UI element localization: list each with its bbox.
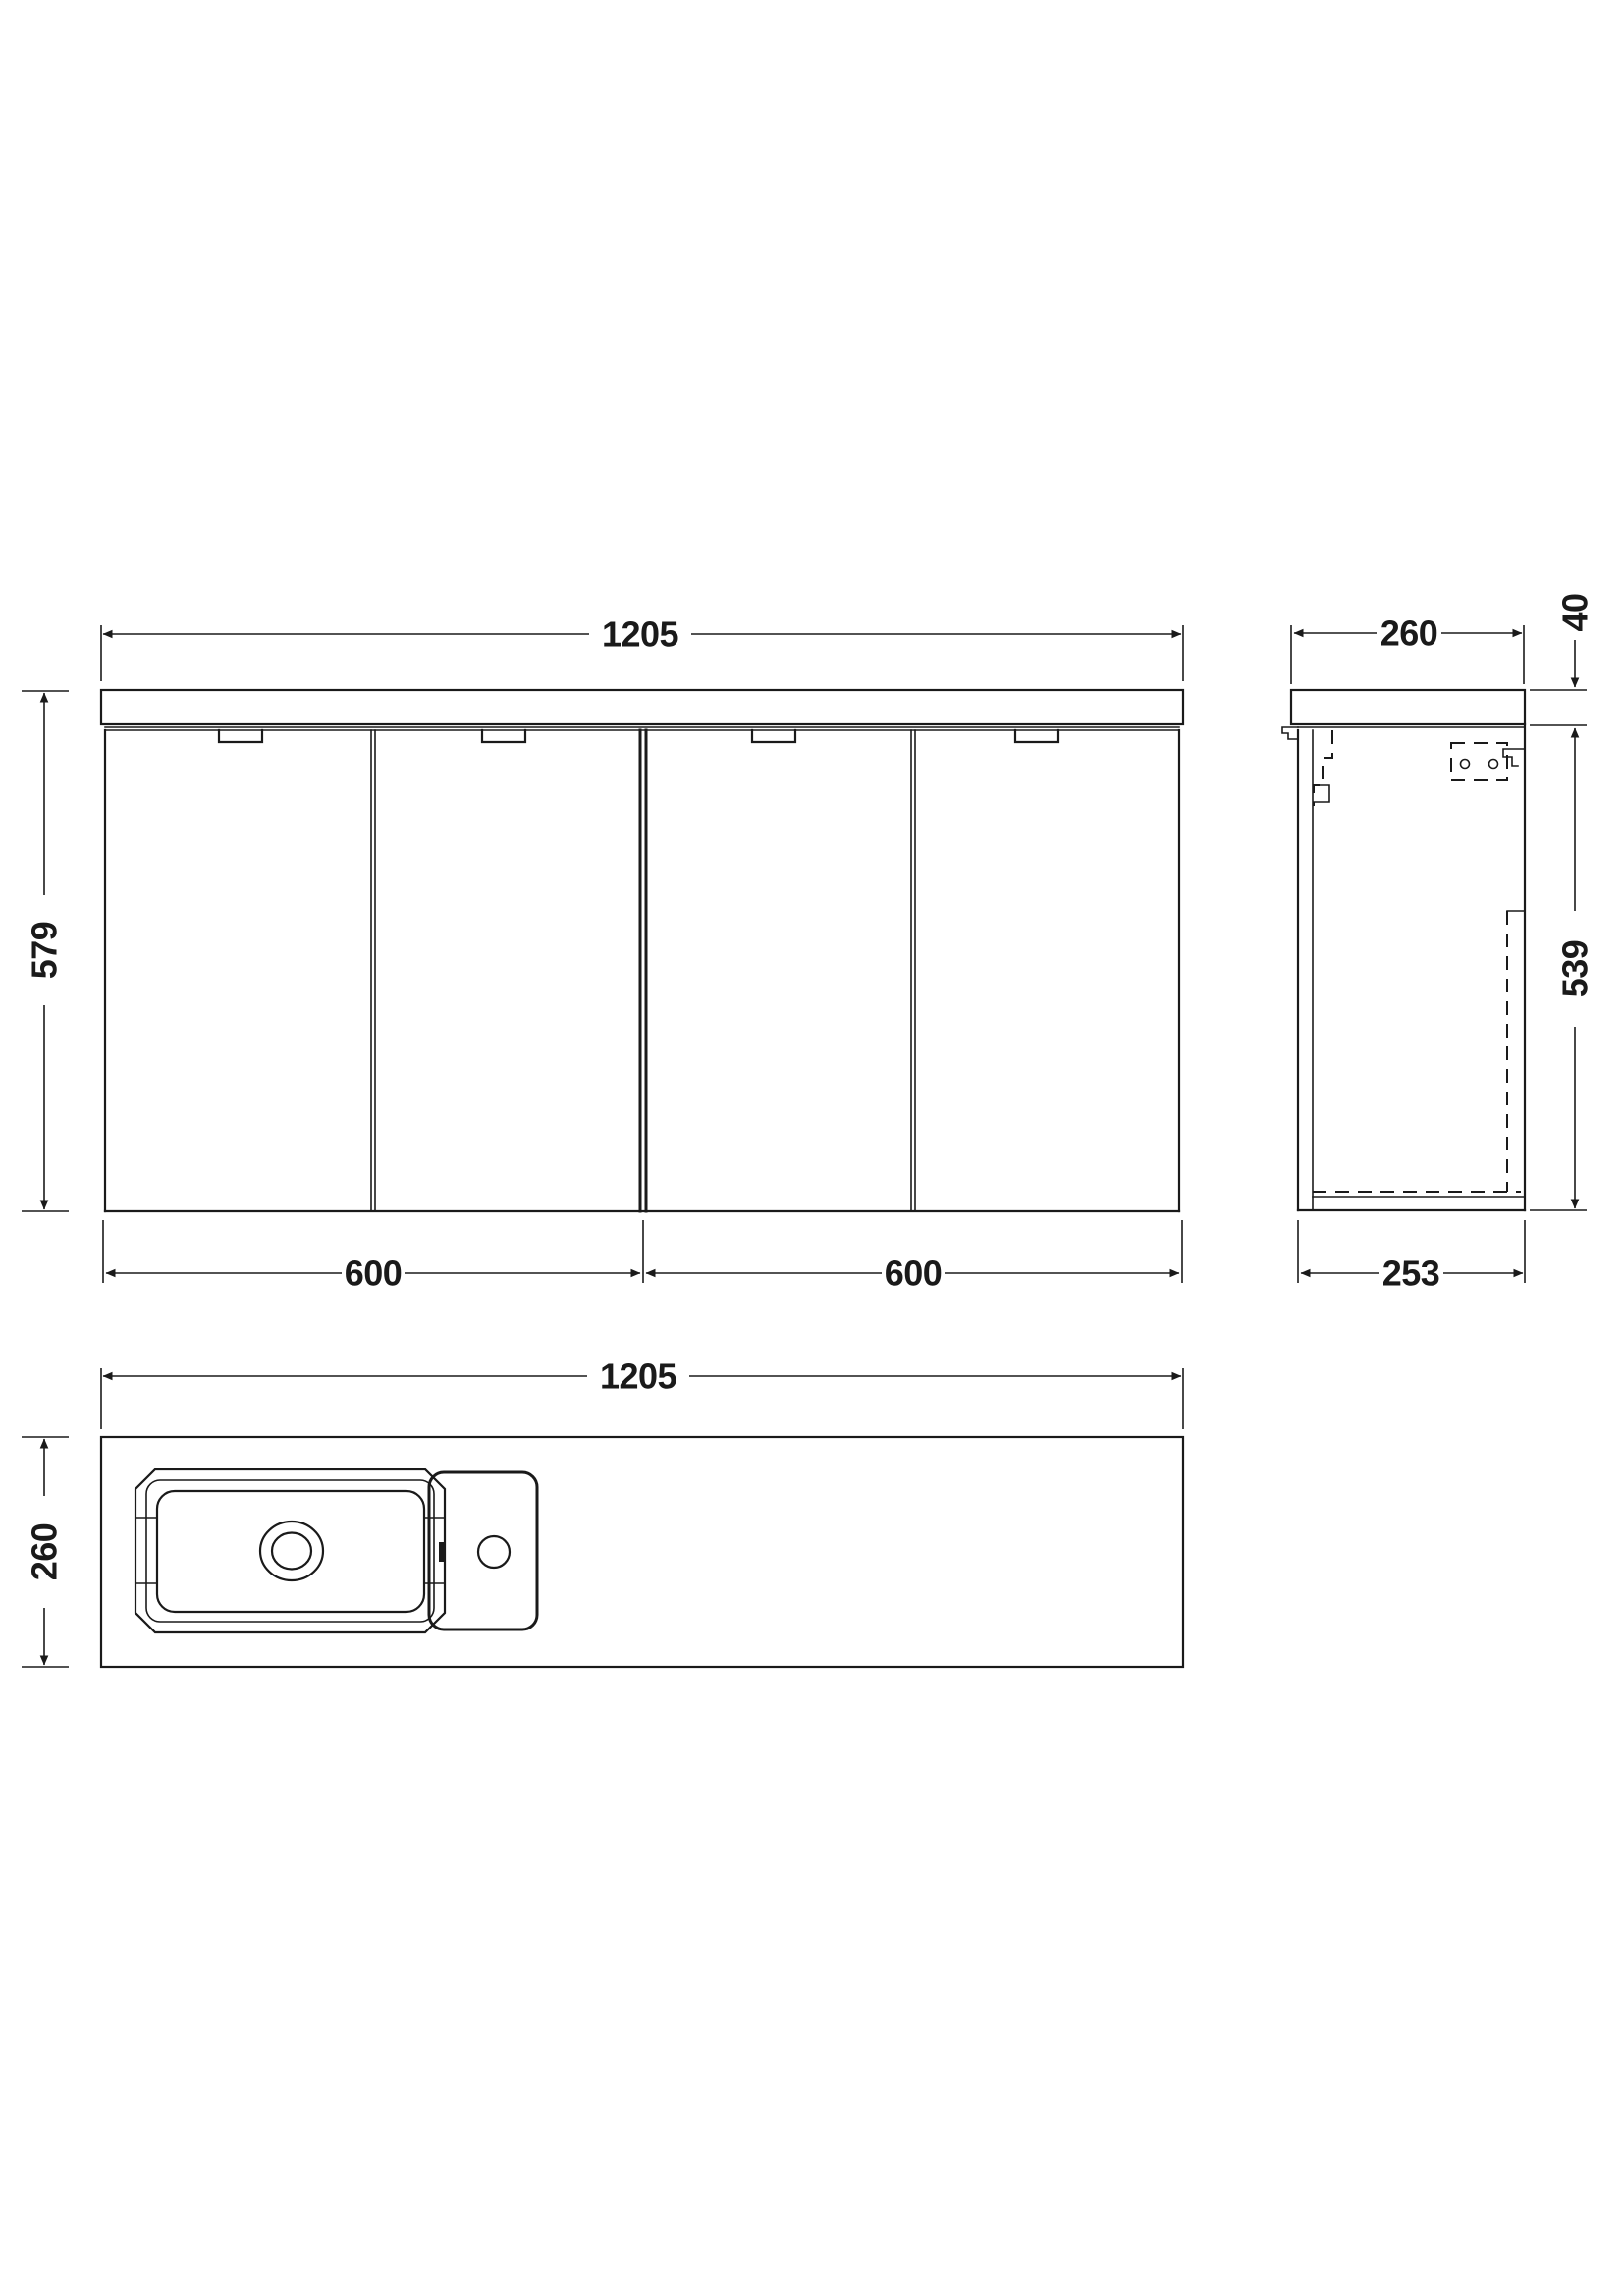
- dim-side-cabinet-depth-label: 253: [1382, 1254, 1440, 1294]
- door-divider-right: [911, 730, 915, 1211]
- dim-front-width: 1205: [101, 614, 1183, 682]
- dim-plan-depth-label: 260: [25, 1523, 65, 1581]
- dim-front-width-label: 1205: [602, 614, 679, 655]
- side-hinge-step: [1314, 785, 1329, 802]
- basin-outer-rim: [135, 1469, 445, 1632]
- dim-plan-depth: 260: [22, 1437, 69, 1667]
- side-worktop: [1291, 690, 1525, 724]
- door-handle-notch-2: [482, 730, 525, 742]
- door-divider-left: [371, 730, 375, 1211]
- basin-bowl: [157, 1491, 424, 1612]
- dim-plan-width: 1205: [101, 1357, 1183, 1430]
- dim-side-height-label: 539: [1555, 940, 1596, 998]
- dim-front-height-label: 579: [25, 922, 65, 980]
- dim-side-cabinet-depth: 253: [1298, 1220, 1525, 1294]
- plan-view: 1205 260: [22, 1357, 1183, 1668]
- dim-side-depth: 260: [1291, 614, 1524, 685]
- front-doors: [105, 730, 1179, 1211]
- side-elevation-view: 260 40 539 253: [1282, 593, 1596, 1293]
- door-handle-notch-1: [219, 730, 262, 742]
- dim-door-width-left-label: 600: [345, 1254, 403, 1294]
- basin-inner-rim: [146, 1480, 434, 1622]
- door-divider-center: [640, 730, 646, 1211]
- front-worktop: [101, 690, 1183, 724]
- dim-front-height: 579: [22, 691, 69, 1211]
- dim-worktop-thickness: 40: [1530, 593, 1596, 725]
- dim-door-width-right-label: 600: [885, 1254, 943, 1294]
- dim-door-width-right: 600: [646, 1220, 1182, 1294]
- dim-worktop-thickness-label: 40: [1555, 593, 1596, 631]
- back-panel-hidden: [1507, 911, 1525, 1192]
- door-handle-notch-4: [1015, 730, 1058, 742]
- side-cabinet: [1282, 724, 1525, 1210]
- basin-drain: [260, 1522, 323, 1580]
- page: { "drawing": { "line_color": "#1a1a1a", …: [0, 0, 1623, 2296]
- basin: [135, 1469, 445, 1632]
- front-elevation-view: 1205 579 600 600: [22, 614, 1183, 1294]
- door-handle-notch-3: [752, 730, 795, 742]
- technical-drawing: 1205 579 600 600: [0, 0, 1623, 2296]
- tap-hole: [478, 1536, 510, 1568]
- dim-door-width-left: 600: [103, 1220, 643, 1294]
- wall-bracket: [1451, 743, 1525, 780]
- dim-side-height: 539: [1530, 728, 1596, 1210]
- side-door-handle-profile: [1282, 727, 1298, 739]
- dim-side-depth-label: 260: [1380, 614, 1438, 654]
- dim-plan-width-label: 1205: [600, 1357, 677, 1397]
